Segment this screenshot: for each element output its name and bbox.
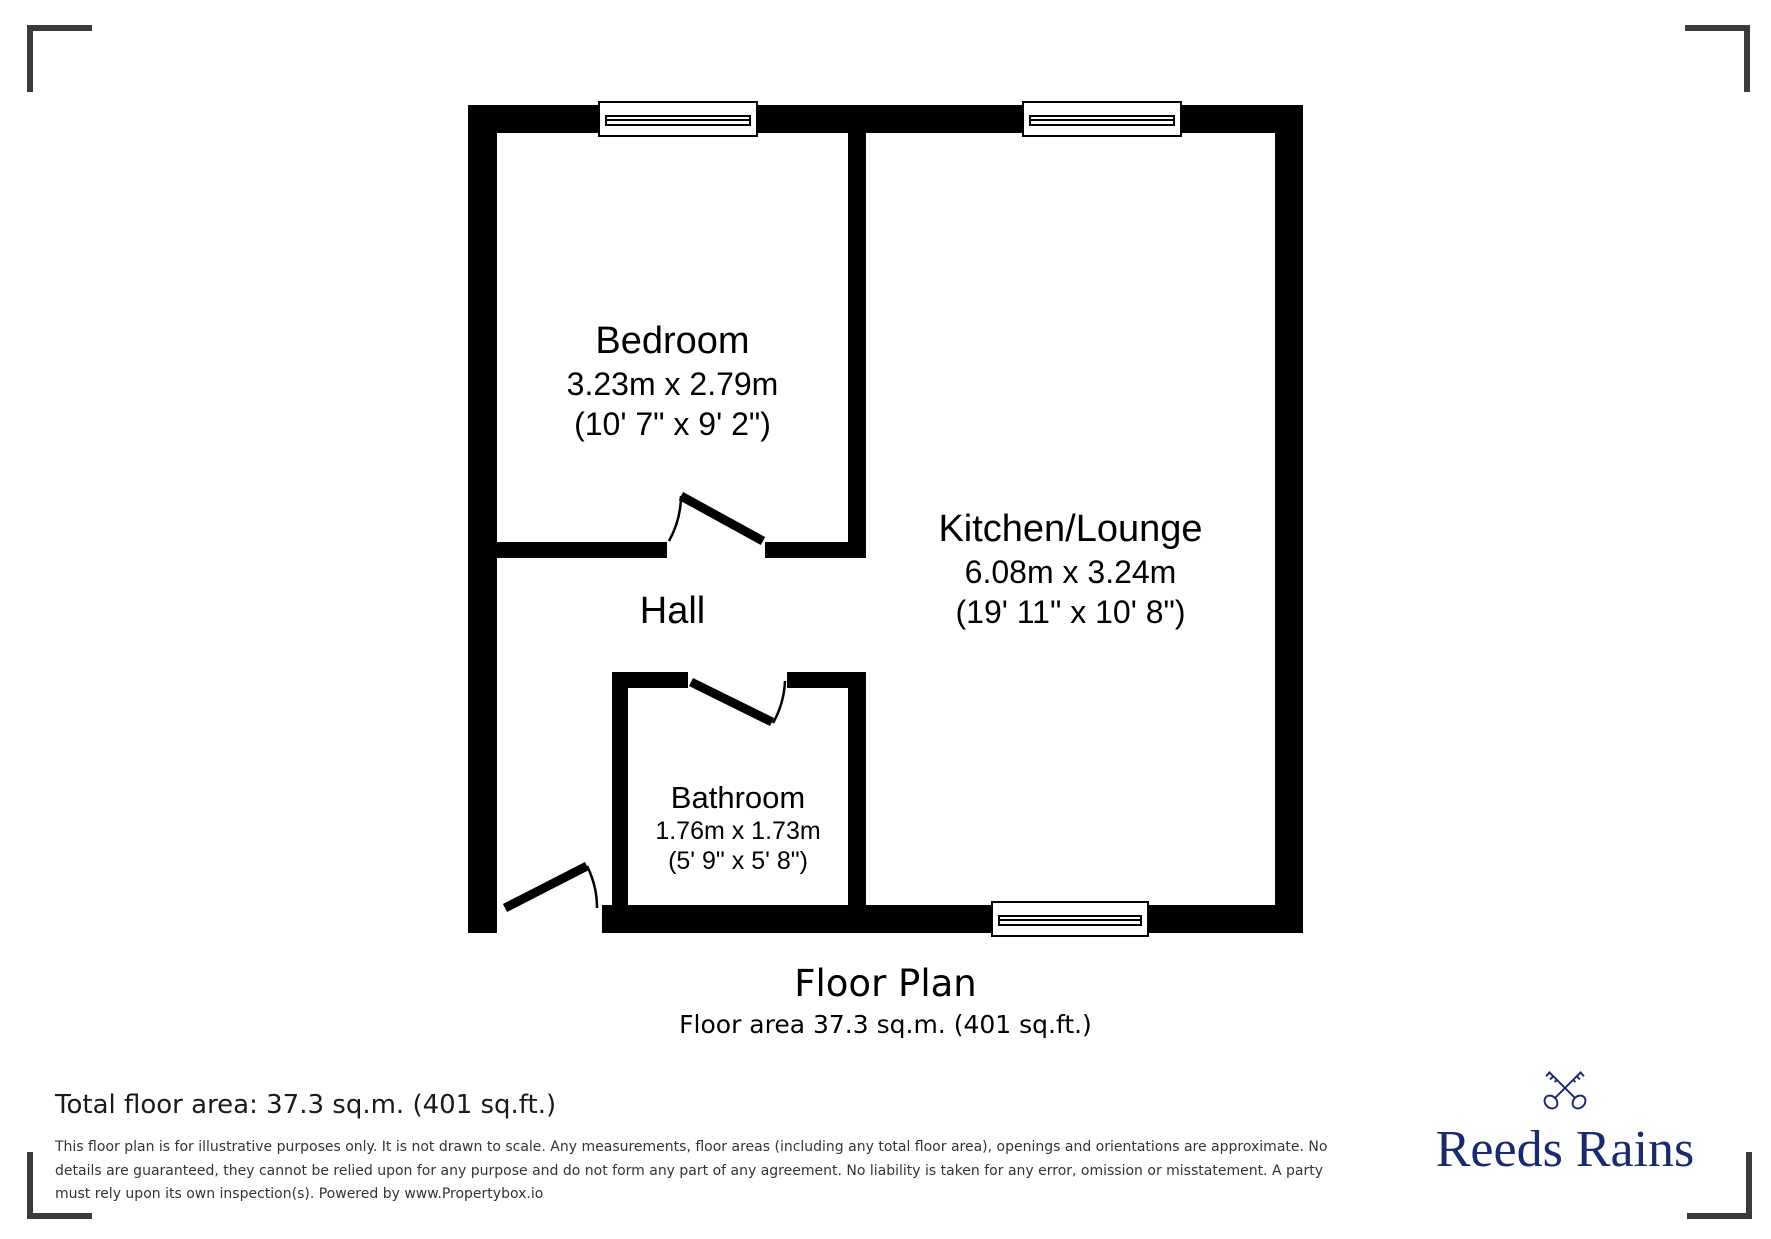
floor-plan-page: Bedroom 3.23m x 2.79m (10' 7" x 9' 2") K… <box>0 0 1771 1239</box>
wall-left <box>468 105 497 933</box>
door-arc-bedroom <box>669 496 681 541</box>
room-name: Hall <box>497 588 848 634</box>
wall-divider-lower <box>848 672 866 905</box>
disclaimer-line: details are guaranteed, they cannot be r… <box>55 1160 1327 1184</box>
room-dim-imperial: (5' 9" x 5' 8") <box>628 846 848 876</box>
wall-bottom <box>602 905 1303 933</box>
door-arc-entrance <box>587 866 597 908</box>
room-label-hall: Hall <box>497 588 848 634</box>
wall-divider-upper <box>848 133 866 558</box>
crossed-keys-icon <box>1533 1056 1597 1120</box>
room-dim-metric: 6.08m x 3.24m <box>866 552 1275 592</box>
window-glazing <box>605 115 751 126</box>
plan-title: Floor Plan <box>468 962 1303 1005</box>
room-label-bathroom: Bathroom 1.76m x 1.73m (5' 9" x 5' 8") <box>628 780 848 876</box>
wall-bathroom-top-left <box>612 672 688 688</box>
room-dim-metric: 1.76m x 1.73m <box>628 816 848 846</box>
wall-bathroom-left <box>612 688 628 905</box>
total-floor-area: Total floor area: 37.3 sq.m. (401 sq.ft.… <box>55 1090 556 1120</box>
room-dim-imperial: (19' 11" x 10' 8") <box>866 592 1275 632</box>
brand-logo: Reeds Rains <box>1390 1056 1740 1180</box>
wall-right <box>1275 105 1303 933</box>
wall-bathroom-top-right <box>787 672 866 688</box>
room-dim-metric: 3.23m x 2.79m <box>497 364 848 404</box>
wall-bedroom-hall-right <box>765 542 866 558</box>
crop-mark-top-left-icon <box>27 25 92 92</box>
plan-area-line: Floor area 37.3 sq.m. (401 sq.ft.) <box>468 1010 1303 1039</box>
window-kitchen-bottom <box>991 901 1149 937</box>
wall-bedroom-hall-left <box>497 542 667 558</box>
window-glazing <box>1029 115 1175 126</box>
disclaimer-line: This floor plan is for illustrative purp… <box>55 1136 1327 1160</box>
door-arc-bathroom <box>773 681 785 723</box>
crop-mark-top-right-icon <box>1685 25 1750 92</box>
disclaimer: This floor plan is for illustrative purp… <box>55 1136 1327 1207</box>
room-name: Bathroom <box>628 780 848 816</box>
brand-name: Reeds Rains <box>1390 1120 1740 1180</box>
door-leaf-bedroom <box>681 496 763 541</box>
window-glazing <box>998 915 1142 926</box>
door-leaf-bathroom <box>691 682 772 722</box>
window-kitchen-top <box>1022 101 1182 137</box>
door-leaf-entrance <box>505 866 587 908</box>
room-label-kitchen-lounge: Kitchen/Lounge 6.08m x 3.24m (19' 11" x … <box>866 506 1275 632</box>
disclaimer-line: must rely upon its own inspection(s). Po… <box>55 1183 1327 1207</box>
window-bedroom <box>598 101 758 137</box>
room-label-bedroom: Bedroom 3.23m x 2.79m (10' 7" x 9' 2") <box>497 318 848 444</box>
room-name: Kitchen/Lounge <box>866 506 1275 552</box>
room-dim-imperial: (10' 7" x 9' 2") <box>497 404 848 444</box>
room-name: Bedroom <box>497 318 848 364</box>
